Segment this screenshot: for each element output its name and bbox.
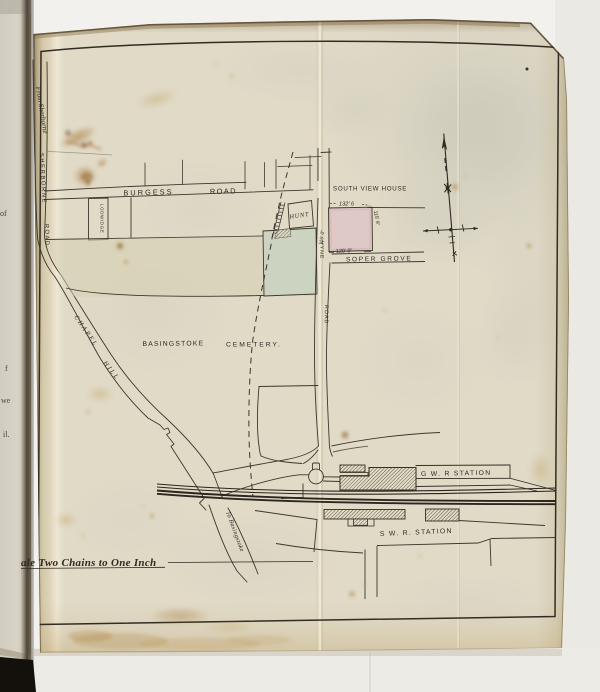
svg-text:BURGESS: BURGESS: [123, 187, 173, 197]
svg-text:of: of: [0, 209, 7, 218]
svg-text:ROAD: ROAD: [323, 305, 329, 324]
svg-text:f: f: [5, 364, 8, 373]
svg-text:SOUTH VIEW HOUSE: SOUTH VIEW HOUSE: [333, 186, 407, 193]
svg-text:BASINGSTOKE: BASINGSTOKE: [142, 340, 204, 348]
svg-text:il.: il.: [3, 430, 9, 439]
svg-text:ROAD: ROAD: [43, 224, 50, 247]
svg-text:LODWIDGE: LODWIDGE: [100, 204, 105, 234]
svg-text:G W. R STATION: G W. R STATION: [421, 470, 492, 478]
svg-text:we: we: [1, 396, 11, 405]
svg-text:CEMETERY.: CEMETERY.: [226, 342, 282, 349]
svg-text:ROAD: ROAD: [210, 186, 237, 196]
svg-text:132' 6: 132' 6: [339, 202, 355, 208]
svg-text:SOPER GROVE: SOPER GROVE: [346, 255, 412, 263]
